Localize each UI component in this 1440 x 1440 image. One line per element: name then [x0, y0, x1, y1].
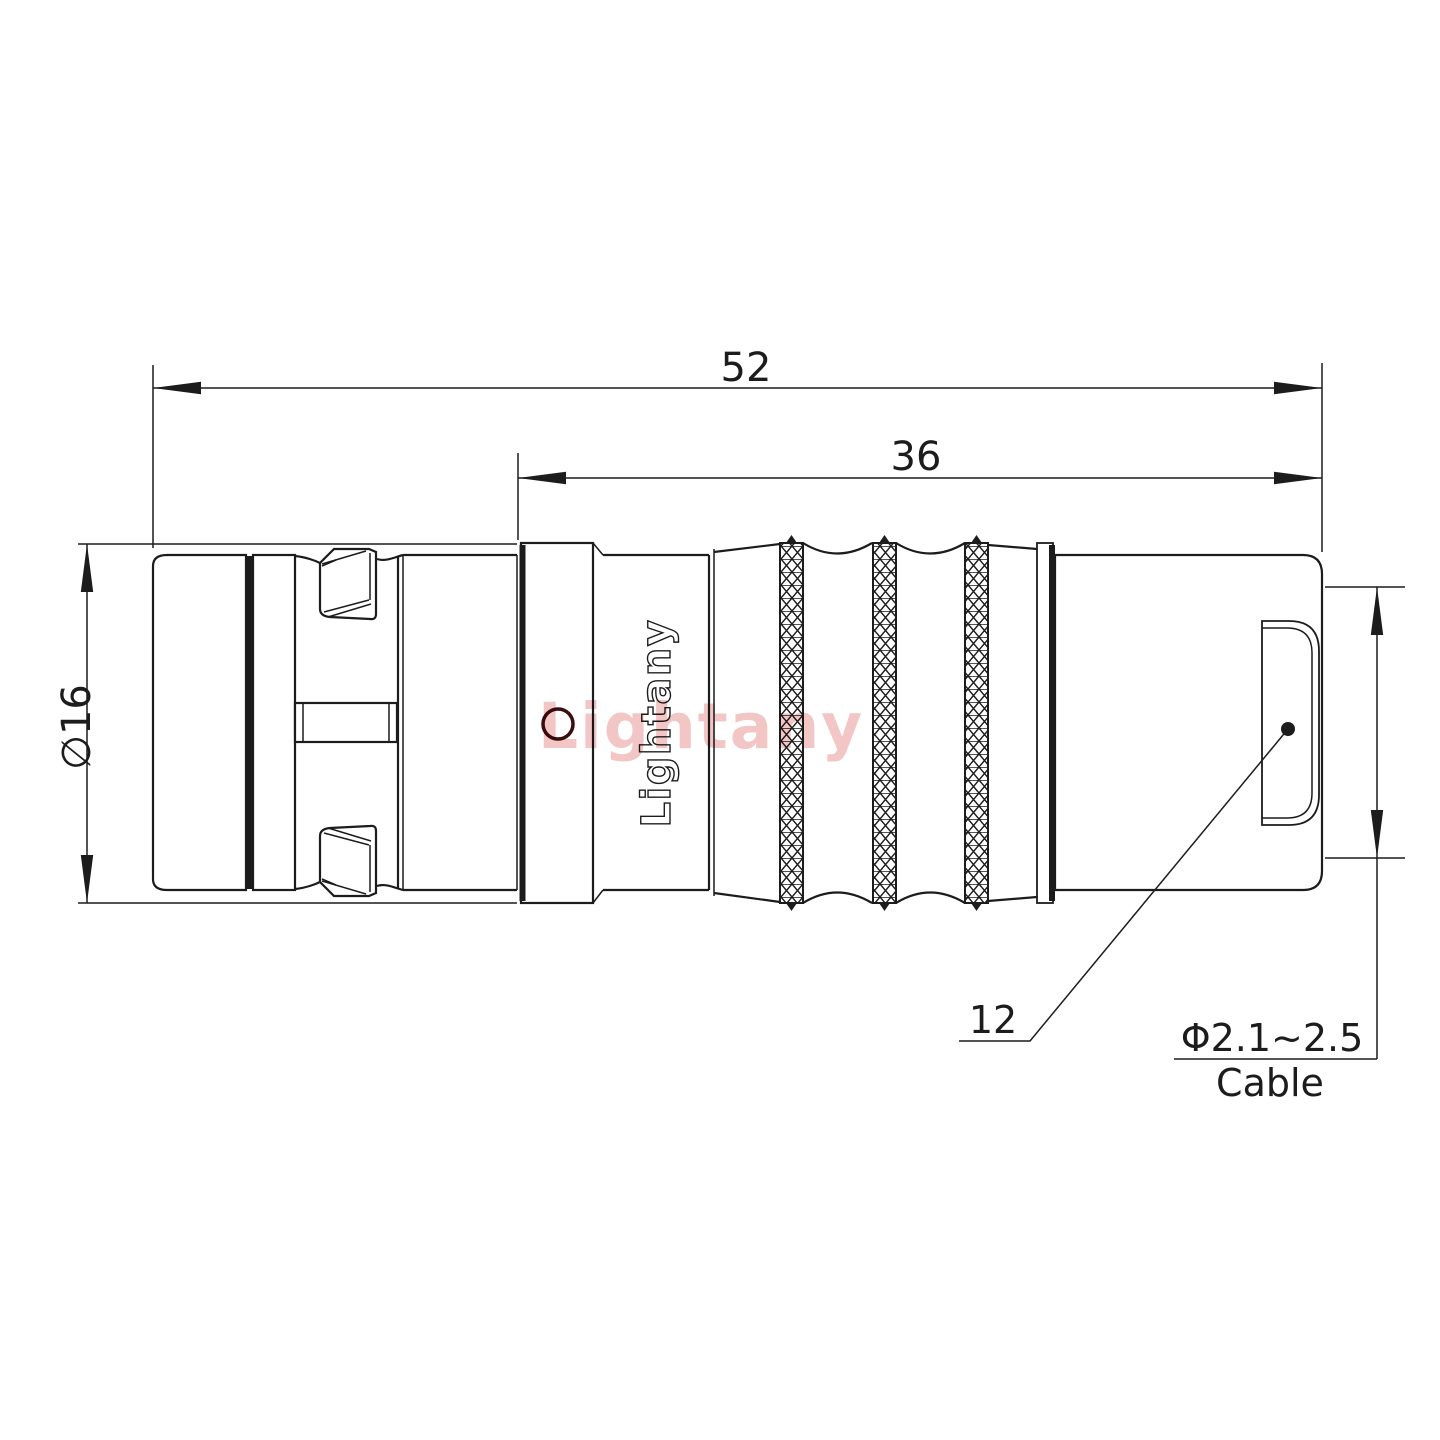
nut-ref-text: 12 [969, 998, 1017, 1042]
knurl-band-3 [965, 535, 988, 911]
dim-overall-length-text: 52 [721, 345, 772, 391]
cable-word-text: Cable [1216, 1061, 1324, 1105]
latch-middle-slot [295, 703, 397, 742]
rear-stop-ring [1037, 543, 1053, 903]
plain-section [403, 555, 517, 890]
dimension-body-length: 36 [518, 434, 1322, 540]
grip-exit-top [988, 545, 1037, 549]
cable-range-text: Φ2.1~2.5 [1181, 1016, 1364, 1060]
grip-waist-bottom-2 [896, 893, 965, 904]
front-cap [153, 555, 246, 890]
latch-key-bottom [320, 826, 376, 896]
dim-body-length-text: 36 [891, 434, 942, 480]
grip-exit-bottom [988, 897, 1037, 901]
technical-drawing-page: Lightany [0, 0, 1440, 1440]
grip-waist-top-2 [896, 543, 965, 554]
dim-outer-diameter-text: ∅16 [54, 684, 100, 770]
latch-key-top [320, 549, 376, 619]
dimension-overall-length: 52 [153, 345, 1322, 552]
rear-barrel [1055, 555, 1322, 890]
knurl-band-2 [873, 535, 896, 911]
sleeve-ring [253, 555, 295, 890]
watermark-text: Lightany [538, 690, 864, 763]
connector-technical-drawing: Lightany [0, 0, 1440, 1440]
latch-section [295, 549, 403, 896]
grip-waist-bottom-1 [803, 893, 872, 904]
grip-waist-top-1 [803, 543, 872, 554]
